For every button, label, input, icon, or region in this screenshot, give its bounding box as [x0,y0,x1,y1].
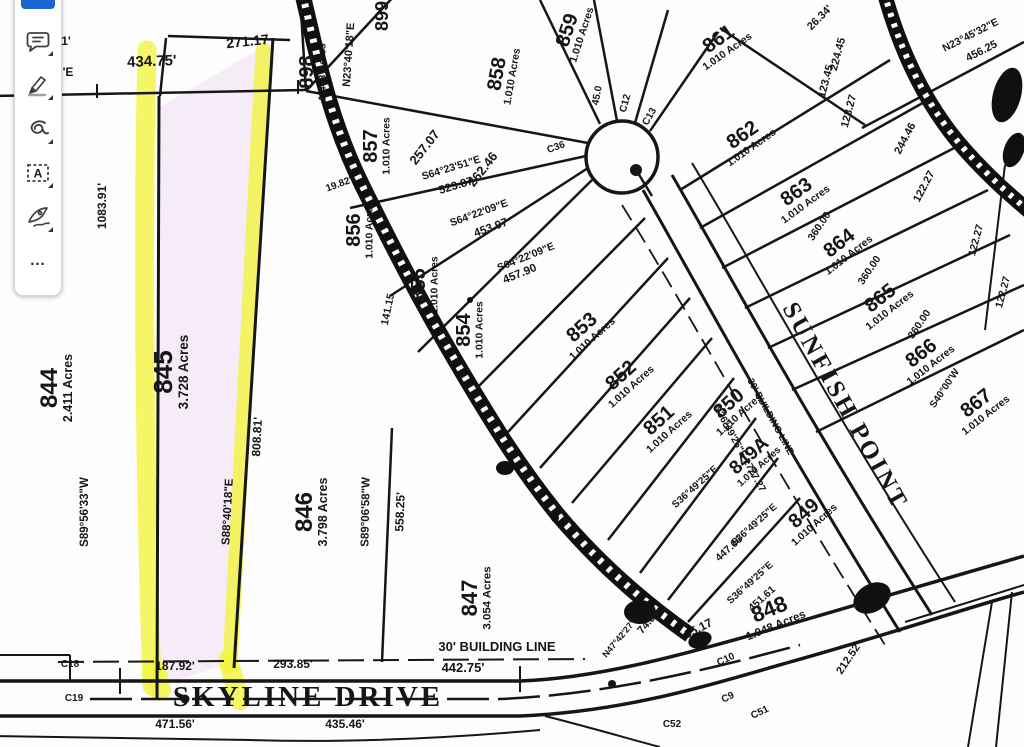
map-label: 360.00 [856,254,884,287]
map-label: 1' [61,34,71,48]
tool-dropdown-arrow [48,51,53,56]
lot-label-847: 8473.054 Acres [457,566,494,629]
map-label: 293.85' [273,657,313,671]
signature-tool-button[interactable] [18,195,58,239]
lot-label-851: 8511.010 Acres [630,393,694,456]
lot-label-846: 8463.798 Acres [291,478,330,547]
svg-text:A: A [34,166,43,180]
plat-map-page: SKYLINE DRIVE SUNFISH POINT 434.75'271.1… [0,0,1024,747]
map-label: C19 [65,693,84,704]
map-label: 123.27 [839,93,859,129]
map-label: 558.25' [392,492,407,532]
map-label: 434.75' [127,52,177,71]
map-label: 141.15 [379,292,397,326]
map-label: C52 [663,719,682,730]
map-label: 'E [63,65,74,79]
map-label: 523.87 [438,175,475,197]
comment-tool-button[interactable] [18,19,58,63]
tool-dropdown-arrow [48,139,53,144]
map-label: N23°40'18"E [341,22,357,87]
map-label: 442.75' [442,660,485,675]
map-label: C13 [640,106,659,128]
map-label: N47°42'27"W [600,610,643,659]
map-label: 244.46 [892,121,918,156]
map-label: 447.66 [713,533,745,564]
text-box-tool-button[interactable]: A [18,151,58,195]
map-label: C12 [618,93,633,114]
annotation-toolbar: A … [14,0,62,296]
map-label: 26.34' [805,3,835,33]
map-label: 360.00 [906,308,934,341]
map-label: 45.0 [590,85,604,107]
map-label: S89°56'33"W [79,477,91,547]
lot-label-856: 8561.010 Acres [343,201,375,259]
more-tools-button[interactable]: … [18,239,58,283]
lot-label-867: 8671.010 Acres [947,377,1012,438]
map-label: S89°06'58"W [359,477,372,547]
lot-label-859: 8591.010 Acres [548,0,597,64]
street-label-sunfish-point: SUNFISH POINT [777,298,913,515]
map-label: 122.27 [966,223,986,257]
map-label: C36 [546,139,567,156]
map-label: 453.97 [472,217,509,240]
lot-label-849: 8491.010 Acres [775,486,839,549]
map-label: 187.92' [155,659,195,673]
lot-label-862: 8621.010 Acres [713,109,779,169]
map-label: 435.46' [325,717,365,731]
map-label: 19.82' [324,175,354,195]
tool-dropdown-arrow [48,183,53,188]
map-label: 257.07 [406,127,442,168]
plat-map-canvas: SKYLINE DRIVE SUNFISH POINT 434.75'271.1… [0,0,1024,747]
tool-dropdown-arrow [48,227,53,232]
map-label: 122.27 [911,169,937,204]
more-tools-icon: … [30,256,47,266]
map-label: C9 [720,690,737,706]
active-tool-button[interactable] [21,0,55,9]
highlighter-tool-button[interactable] [18,63,58,107]
lot-label-857: 8571.010 Acres [360,117,392,175]
street-label-skyline-drive: SKYLINE DRIVE [173,681,443,713]
freehand-draw-tool-button[interactable] [18,107,58,151]
lot-label-858: 8581.010 Acres [481,44,523,106]
map-label: S36°49'25"E [670,463,721,510]
map-label: 1083.91' [95,183,109,229]
map-label: 30' BUILDING LINE [438,639,556,654]
lot-label-861: 8611.010 Acres [689,13,755,73]
lot-label-899: 899 [372,1,392,31]
lot-label-853: 8531.010 Acres [553,300,617,363]
map-label: 808.81' [249,417,265,457]
lot-label-844: 8442.411 Acres [36,354,75,422]
map-label: C10 [715,651,737,669]
map-label: C51 [749,704,771,722]
tool-dropdown-arrow [48,95,53,100]
map-label: 471.56' [155,717,195,731]
lot-label-852: 8521.010 Acres [592,348,656,411]
map-label: C18 [61,659,80,670]
